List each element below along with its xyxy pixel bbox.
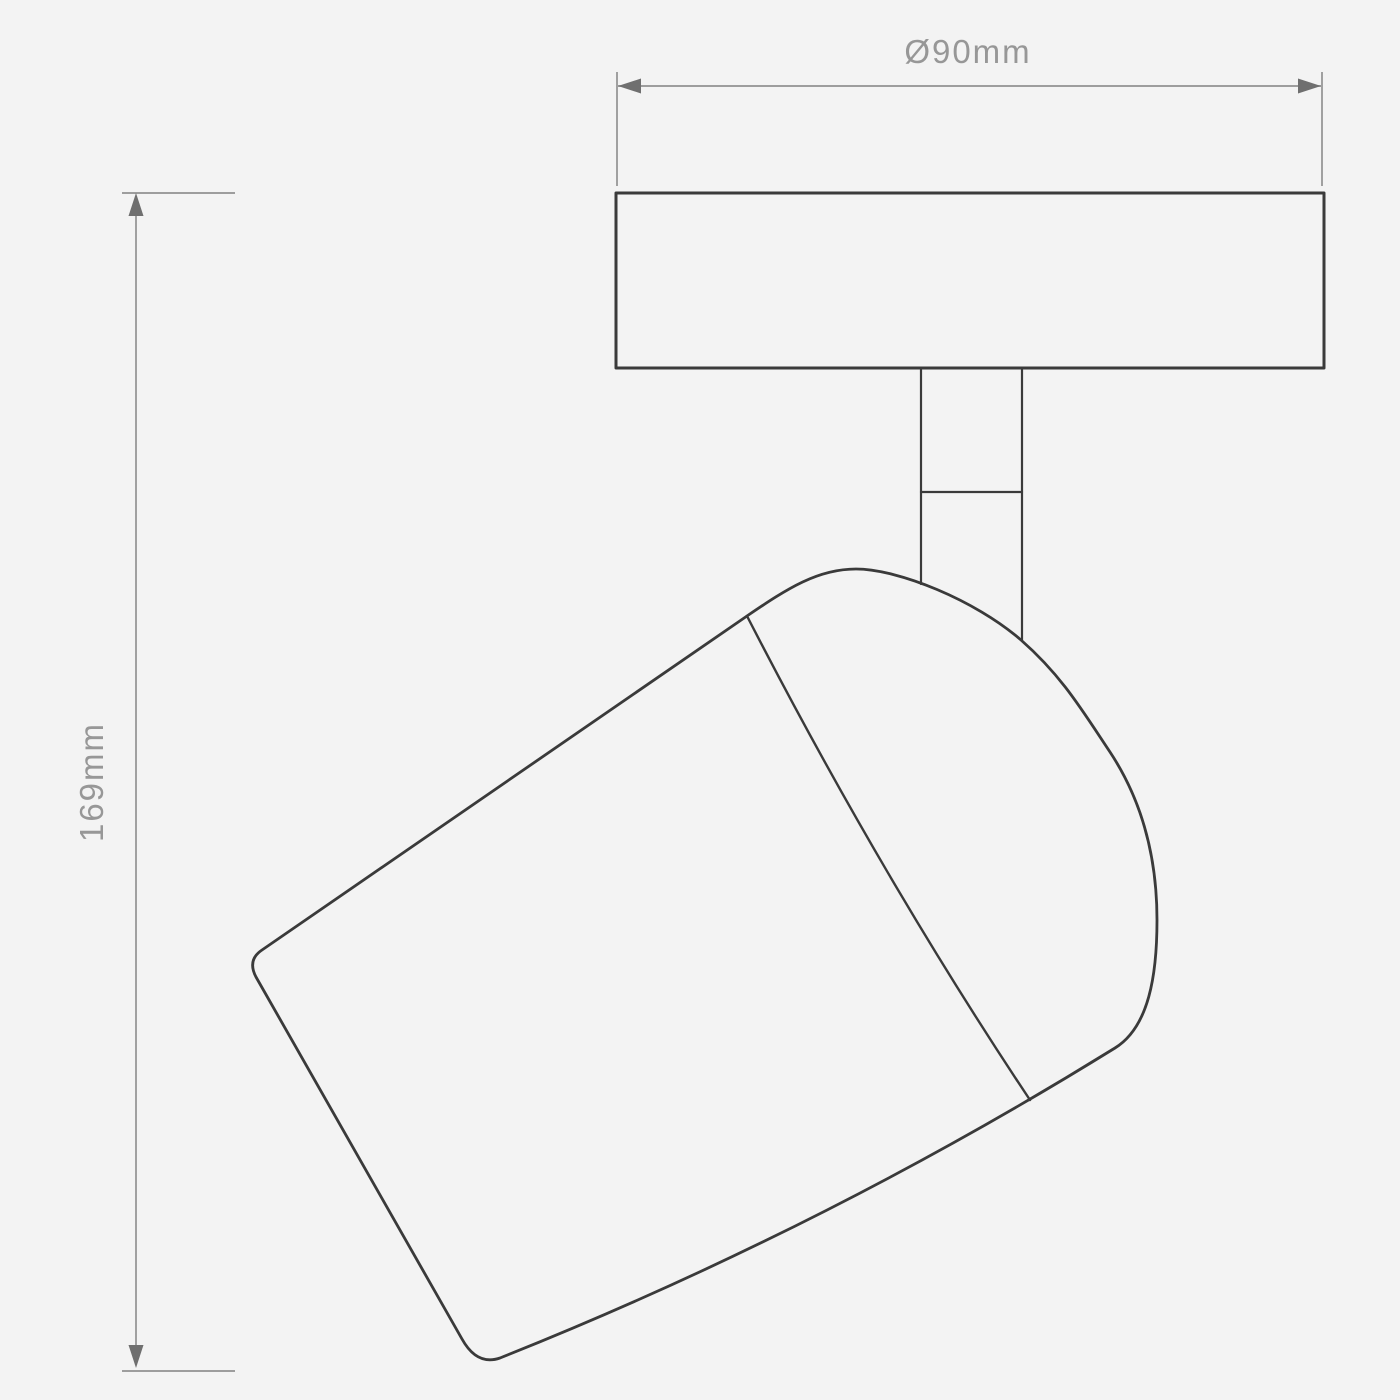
height-dimension-label: 169mm: [73, 722, 110, 842]
technical-drawing-page: Ø90mm 169mm: [0, 0, 1400, 1400]
width-dimension-label: Ø90mm: [904, 33, 1031, 70]
drawing-background: [0, 0, 1400, 1400]
spotlight-dimension-drawing: Ø90mm 169mm: [0, 0, 1400, 1400]
